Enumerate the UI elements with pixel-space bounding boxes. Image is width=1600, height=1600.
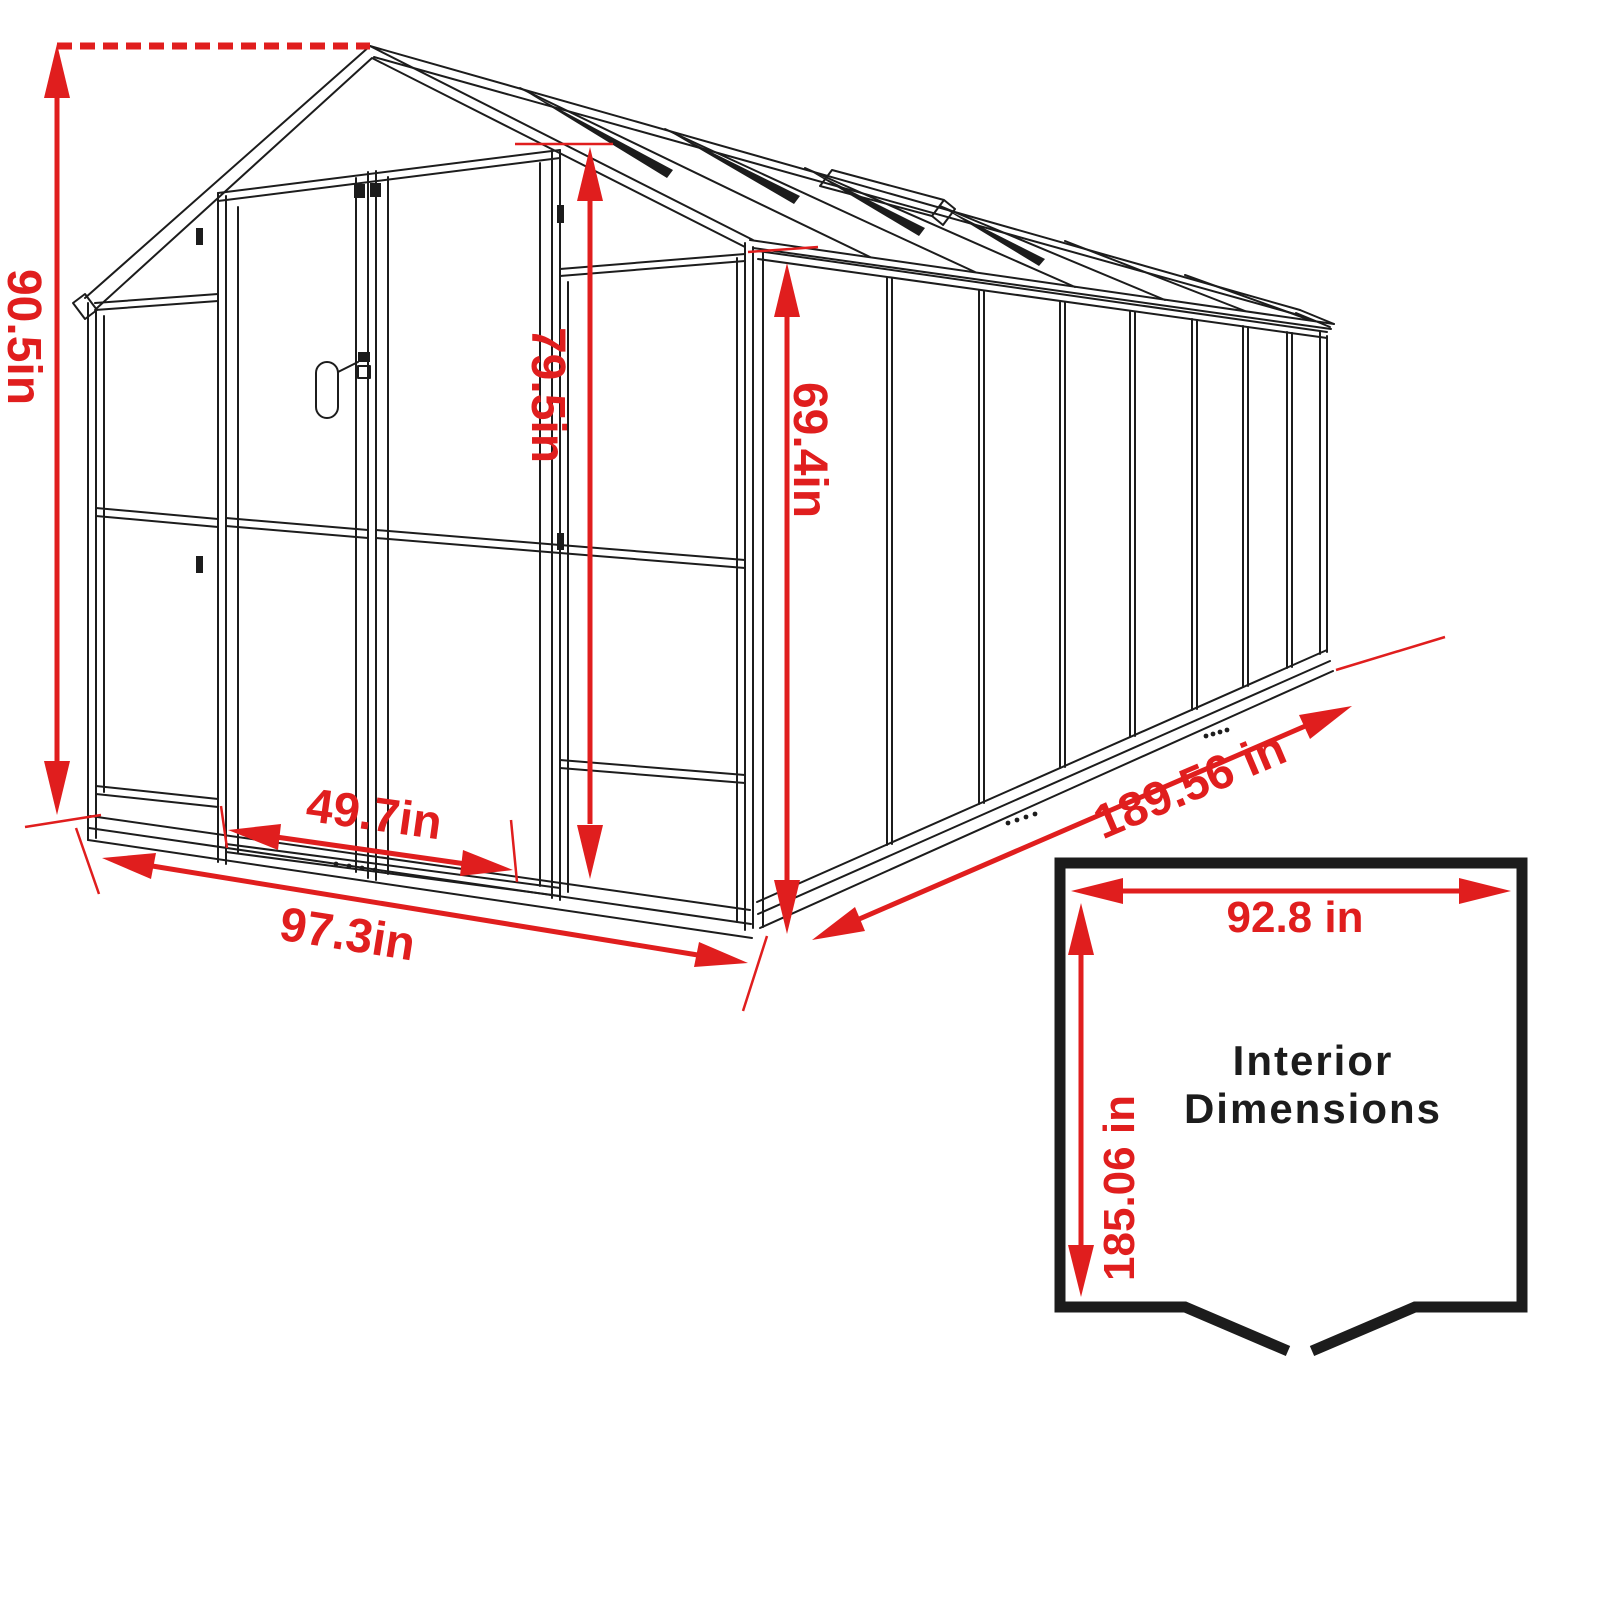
greenhouse-dimension-diagram: 90.5in 79.5in 69.4in 49.7in [0,0,1600,1600]
door-handle [316,352,370,418]
interior-depth-label: 185.06 in [1095,1095,1144,1281]
door-hinge [196,228,203,245]
dim-interior-depth: 185.06 in [1068,903,1144,1297]
interior-dimensions-inset: 92.8 in 185.06 in Interior Dimensions [1060,863,1522,1351]
overall-height-label: 90.5in [0,269,50,405]
front-width-label: 97.3in [276,898,419,972]
interior-heading-line2: Dimensions [1184,1085,1442,1132]
dim-overall-height: 90.5in [0,44,370,827]
double-doors [196,150,564,900]
side-length-label: 189.56 in [1086,722,1293,850]
dim-side-wall-height: 69.4in [748,247,836,934]
diagram-svg: 90.5in 79.5in 69.4in 49.7in [0,0,1600,1600]
dim-interior-width: 92.8 in [1071,878,1511,942]
door-hinge [196,556,203,573]
interior-width-label: 92.8 in [1227,893,1364,942]
door-height-label: 79.5in [521,327,574,463]
wall-height-label: 69.4in [783,382,836,518]
door-width-label: 49.7in [303,779,445,850]
door-hinge [557,533,564,550]
roof [370,46,1334,329]
door-hinge [557,205,564,223]
interior-heading-line1: Interior [1233,1037,1394,1084]
door-pivot-block [370,183,381,197]
door-pivot-block [354,184,365,198]
